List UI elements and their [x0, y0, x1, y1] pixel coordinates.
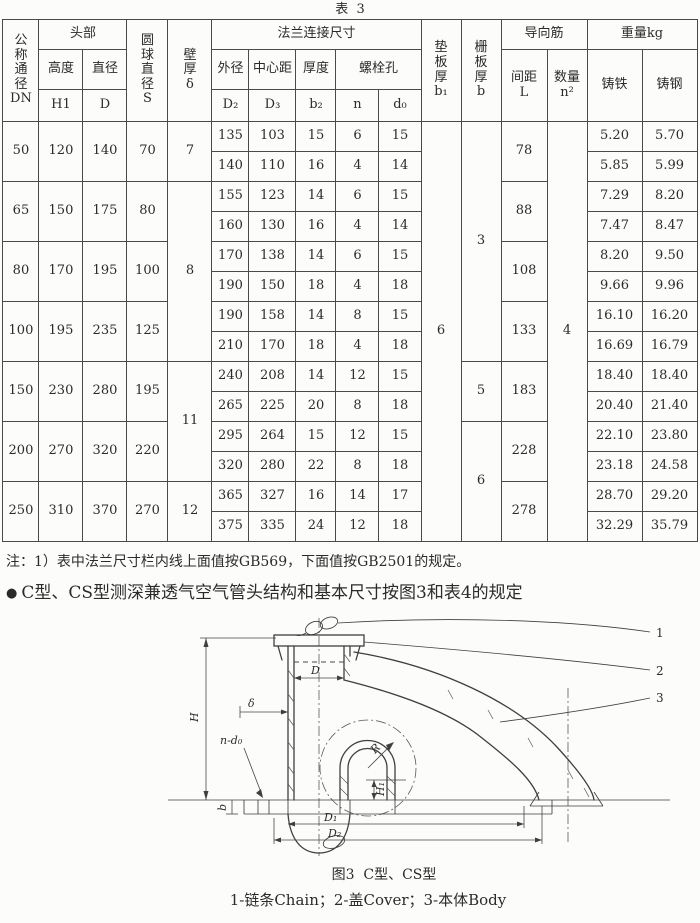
- body-outer-wall: [354, 652, 594, 800]
- leader-part-3: [500, 698, 650, 722]
- cell-d2: 140: [212, 152, 249, 182]
- cell-n: 6: [336, 242, 379, 272]
- cell-d: 235: [83, 302, 127, 362]
- cell-d0: 15: [379, 242, 421, 272]
- header-n: n: [336, 90, 379, 122]
- cell-d0: 14: [379, 212, 421, 242]
- cell-weight-iron: 22.10: [587, 422, 642, 452]
- cell-l: 78: [501, 122, 547, 182]
- table-row: 2503103702701236532716141727828.7029.20: [3, 482, 697, 512]
- cell-d3: 123: [249, 182, 296, 212]
- leader-part-1: [338, 620, 650, 632]
- cell-weight-steel: 9.50: [642, 242, 697, 272]
- header-head: 头部: [39, 20, 127, 50]
- header-delta: 壁 厚 δ: [168, 20, 212, 122]
- part-label-2: 2: [656, 664, 664, 678]
- cell-d3: 170: [249, 332, 296, 362]
- header-d: D: [83, 90, 127, 122]
- cell-dn: 150: [3, 362, 39, 422]
- cell-n: 4: [336, 152, 379, 182]
- header-s: 圆 球 直 径 S: [127, 20, 168, 122]
- cell-weight-steel: 29.20: [642, 482, 697, 512]
- figure-caption: 图3 C型、CS型: [34, 864, 700, 884]
- figure-legend: 1-链条Chain；2-盖Cover；3-本体Body: [18, 889, 700, 910]
- header-d3: D₃: [249, 90, 296, 122]
- part-label-3: 3: [656, 691, 664, 705]
- cell-l: 228: [501, 422, 547, 482]
- header-weight: 重量kg: [587, 20, 697, 50]
- cell-d: 140: [83, 122, 127, 182]
- cell-l: 133: [501, 302, 547, 362]
- cell-n: 12: [336, 362, 379, 392]
- cell-b2: 14: [296, 362, 336, 392]
- table-title: 表 3: [0, 0, 700, 17]
- cell-d2: 170: [212, 242, 249, 272]
- dim-label-d2: D₂: [327, 827, 341, 840]
- cell-b2: 18: [296, 332, 336, 362]
- cell-h1: 120: [39, 122, 83, 182]
- cell-d3: 208: [249, 362, 296, 392]
- header-b2: b₂: [296, 90, 336, 122]
- header-od: 外径: [212, 50, 249, 90]
- cell-d3: 327: [249, 482, 296, 512]
- cell-b2: 24: [296, 512, 336, 542]
- cell-n: 8: [336, 302, 379, 332]
- cell-d3: 103: [249, 122, 296, 152]
- cell-n: 12: [336, 422, 379, 452]
- cell-delta: 12: [168, 482, 212, 542]
- cell-d: 175: [83, 182, 127, 242]
- cell-b1: 6: [421, 122, 461, 542]
- cell-delta: 11: [168, 362, 212, 482]
- table-row: 200270320220295264151215622822.1023.80: [3, 422, 697, 452]
- cell-weight-iron: 23.18: [587, 452, 642, 482]
- table-note: 注：1）表中法兰尺寸栏内线上面值按GB569，下面值按GB2501的规定。: [6, 551, 700, 571]
- header-diameter: 直径: [83, 50, 127, 90]
- cell-d2: 365: [212, 482, 249, 512]
- cell-d2: 265: [212, 392, 249, 422]
- cell-d: 370: [83, 482, 127, 542]
- cell-b2: 14: [296, 182, 336, 212]
- header-qty: 数量 n²: [547, 50, 587, 122]
- cell-weight-iron: 32.29: [587, 512, 642, 542]
- cell-weight-iron: 20.40: [587, 392, 642, 422]
- cell-l: 88: [501, 182, 547, 242]
- section-hatching: [288, 654, 589, 797]
- header-cd: 中心距: [249, 50, 296, 90]
- cell-weight-iron: 9.66: [587, 272, 642, 302]
- cell-l: 278: [501, 482, 547, 542]
- table-row: 6515017580815512314615887.298.20: [3, 182, 697, 212]
- cell-d3: 110: [249, 152, 296, 182]
- cell-weight-iron: 18.40: [587, 362, 642, 392]
- cell-weight-iron: 8.20: [587, 242, 642, 272]
- cell-h1: 150: [39, 182, 83, 242]
- cell-d3: 280: [249, 452, 296, 482]
- table-row: 1001952351251901581481513316.1016.20: [3, 302, 697, 332]
- header-d0: d₀: [379, 90, 421, 122]
- cell-s: 195: [127, 362, 168, 422]
- cell-n: 4: [336, 332, 379, 362]
- cell-d0: 15: [379, 302, 421, 332]
- cell-dn: 250: [3, 482, 39, 542]
- cell-h1: 195: [39, 302, 83, 362]
- cell-d0: 17: [379, 482, 421, 512]
- cell-weight-iron: 5.85: [587, 152, 642, 182]
- cell-weight-steel: 5.70: [642, 122, 697, 152]
- cell-s: 100: [127, 242, 168, 302]
- cell-b2: 15: [296, 122, 336, 152]
- cell-b2: 15: [296, 422, 336, 452]
- cell-d0: 15: [379, 122, 421, 152]
- cell-d0: 15: [379, 182, 421, 212]
- header-spacing: 间距 L: [501, 50, 547, 122]
- bullet-icon: ●: [6, 586, 17, 601]
- cell-n: 12: [336, 512, 379, 542]
- dim-label-h: H: [188, 712, 201, 723]
- cell-s: 125: [127, 302, 168, 362]
- cell-b2: 22: [296, 452, 336, 482]
- cell-n: 8: [336, 452, 379, 482]
- cell-weight-iron: 7.29: [587, 182, 642, 212]
- header-flange: 法兰连接尺寸: [212, 20, 421, 50]
- cell-d3: 225: [249, 392, 296, 422]
- cell-weight-steel: 5.99: [642, 152, 697, 182]
- cell-b2: 16: [296, 152, 336, 182]
- cell-d2: 375: [212, 512, 249, 542]
- header-iron: 铸铁: [587, 50, 642, 122]
- cell-d2: 135: [212, 122, 249, 152]
- cell-d3: 150: [249, 272, 296, 302]
- cell-b2: 18: [296, 272, 336, 302]
- cell-d2: 190: [212, 302, 249, 332]
- dim-label-d1: D₁: [323, 811, 337, 824]
- cell-d0: 15: [379, 422, 421, 452]
- cell-weight-steel: 23.80: [642, 422, 697, 452]
- cell-d3: 158: [249, 302, 296, 332]
- cell-weight-iron: 16.10: [587, 302, 642, 332]
- table-row: 5012014070713510315615637845.205.70: [3, 122, 697, 152]
- header-steel: 铸钢: [642, 50, 697, 122]
- cell-n: 6: [336, 182, 379, 212]
- cell-s: 70: [127, 122, 168, 182]
- cell-d0: 15: [379, 362, 421, 392]
- table-row: 15023028019511240208141215518318.4018.40: [3, 362, 697, 392]
- spec-table-header: 公 称 通 径 DN头部圆 球 直 径 S壁 厚 δ法兰连接尺寸垫 板 厚 b₁…: [3, 20, 697, 122]
- dim-label-b: b: [216, 804, 229, 811]
- cell-d3: 264: [249, 422, 296, 452]
- document-page: 表 3 公 称 通 径 DN头部圆 球 直 径 S壁 厚 δ法兰连接尺寸垫 板 …: [0, 0, 700, 923]
- table-row: 80170195100170138146151088.209.50: [3, 242, 697, 272]
- header-b1: 垫 板 厚 b₁: [421, 20, 461, 122]
- cell-d2: 210: [212, 332, 249, 362]
- cell-s: 270: [127, 482, 168, 542]
- part-label-1: 1: [656, 626, 664, 640]
- cell-d: 195: [83, 242, 127, 302]
- header-dn: 公 称 通 径 DN: [3, 20, 39, 122]
- cell-weight-steel: 16.20: [642, 302, 697, 332]
- header-b: 栅 板 厚 b: [461, 20, 501, 122]
- cell-d3: 335: [249, 512, 296, 542]
- cell-weight-steel: 35.79: [642, 512, 697, 542]
- cell-weight-steel: 18.40: [642, 362, 697, 392]
- cell-d3: 130: [249, 212, 296, 242]
- cell-weight-steel: 24.58: [642, 452, 697, 482]
- cell-h1: 170: [39, 242, 83, 302]
- cell-n: 4: [336, 212, 379, 242]
- dim-label-delta: δ: [248, 697, 255, 710]
- cell-weight-iron: 16.69: [587, 332, 642, 362]
- cell-h1: 270: [39, 422, 83, 482]
- cell-weight-steel: 16.79: [642, 332, 697, 362]
- dim-label-bolt-holes: n-d₀: [220, 734, 243, 747]
- cell-d: 320: [83, 422, 127, 482]
- dim-label-h1: H₁: [374, 782, 387, 797]
- section-bullet-line: ●C型、CS型测深兼透气空气管头结构和基本尺寸按图3和表4的规定: [6, 581, 700, 606]
- cell-n: 8: [336, 392, 379, 422]
- cell-d0: 18: [379, 272, 421, 302]
- cell-l: 108: [501, 242, 547, 302]
- section-bullet-text: C型、CS型测深兼透气空气管头结构和基本尺寸按图3和表4的规定: [21, 583, 522, 603]
- cell-n2: 4: [547, 122, 587, 542]
- dim-label-d: D: [310, 664, 320, 677]
- cell-s: 220: [127, 422, 168, 482]
- header-d2: D₂: [212, 90, 249, 122]
- cell-delta: 7: [168, 122, 212, 182]
- cell-d0: 14: [379, 152, 421, 182]
- cell-n: 4: [336, 272, 379, 302]
- air-pipe-head-spec-table: 公 称 通 径 DN头部圆 球 直 径 S壁 厚 δ法兰连接尺寸垫 板 厚 b₁…: [2, 19, 697, 542]
- cell-dn: 100: [3, 302, 39, 362]
- header-guide: 导向筋: [501, 20, 587, 50]
- cell-d2: 295: [212, 422, 249, 452]
- cell-b2: 20: [296, 392, 336, 422]
- cell-d3: 138: [249, 242, 296, 272]
- cell-weight-steel: 8.20: [642, 182, 697, 212]
- cell-d0: 18: [379, 512, 421, 542]
- cell-l: 183: [501, 362, 547, 422]
- cell-b2: 14: [296, 302, 336, 332]
- leader-part-2: [364, 642, 650, 670]
- cell-d2: 240: [212, 362, 249, 392]
- cell-b2: 16: [296, 212, 336, 242]
- cell-d: 280: [83, 362, 127, 422]
- cell-weight-iron: 28.70: [587, 482, 642, 512]
- header-bolt: 螺栓孔: [336, 50, 421, 90]
- cell-weight-steel: 21.40: [642, 392, 697, 422]
- figure-c-cs-type: H D δ n-d₀ b H₁ R: [0, 610, 700, 910]
- cell-weight-iron: 5.20: [587, 122, 642, 152]
- leader-line: [244, 748, 262, 795]
- cell-h1: 230: [39, 362, 83, 422]
- cell-d0: 18: [379, 332, 421, 362]
- cell-dn: 80: [3, 242, 39, 302]
- cell-n: 6: [336, 122, 379, 152]
- cell-dn: 50: [3, 122, 39, 182]
- cell-dn: 65: [3, 182, 39, 242]
- cell-dn: 200: [3, 422, 39, 482]
- cell-s: 80: [127, 182, 168, 242]
- cell-weight-steel: 8.47: [642, 212, 697, 242]
- cell-b: 6: [461, 422, 501, 542]
- header-height: 高度: [39, 50, 83, 90]
- cell-b2: 16: [296, 482, 336, 512]
- cell-delta: 8: [168, 182, 212, 362]
- cell-d2: 160: [212, 212, 249, 242]
- header-thk: 厚度: [296, 50, 336, 90]
- cell-d0: 18: [379, 452, 421, 482]
- cell-d2: 320: [212, 452, 249, 482]
- cell-b: 5: [461, 362, 501, 422]
- cell-d0: 18: [379, 392, 421, 422]
- header-h1: H1: [39, 90, 83, 122]
- cell-d2: 155: [212, 182, 249, 212]
- figure-drawing: H D δ n-d₀ b H₁ R: [148, 610, 688, 862]
- cell-d2: 190: [212, 272, 249, 302]
- cell-n: 14: [336, 482, 379, 512]
- cell-b2: 14: [296, 242, 336, 272]
- spec-table-body: 5012014070713510315615637845.205.7014011…: [3, 122, 697, 542]
- cell-weight-steel: 9.96: [642, 272, 697, 302]
- cell-b: 3: [461, 122, 501, 362]
- cell-h1: 310: [39, 482, 83, 542]
- cell-weight-iron: 7.47: [587, 212, 642, 242]
